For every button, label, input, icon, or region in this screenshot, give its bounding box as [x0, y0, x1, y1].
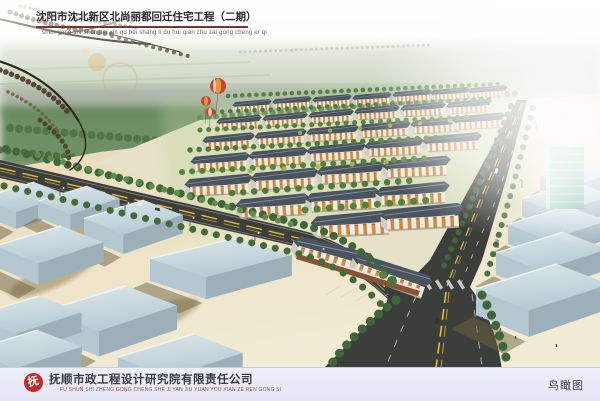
title-underline: [36, 26, 248, 28]
footer-band: 抚 抚顺市政工程设计研究院有限责任公司 FU SHUN SHI ZHENG GO…: [0, 367, 600, 401]
project-header: 沈阳市沈北新区北尚丽都回迁住宅工程（二期） shen yang shi shen…: [36, 9, 267, 36]
view-type-label: 鸟瞰图: [548, 377, 584, 393]
project-title: 沈阳市沈北新区北尚丽都回迁住宅工程（二期）: [36, 9, 267, 24]
company-logo-icon: 抚: [22, 371, 45, 394]
company-name: 抚顺市政工程设计研究院有限责任公司: [49, 371, 253, 387]
rendering-board: 沈阳市沈北新区北尚丽都回迁住宅工程（二期） shen yang shi shen…: [0, 0, 600, 401]
aerial-rendering: [0, 0, 600, 401]
project-title-pinyin: shen yang shi shen bei xin qu bei shang …: [42, 30, 267, 36]
company-name-pinyin: FU SHUN SHI ZHENG GONG CHENG SHE JI YAN …: [60, 387, 281, 393]
